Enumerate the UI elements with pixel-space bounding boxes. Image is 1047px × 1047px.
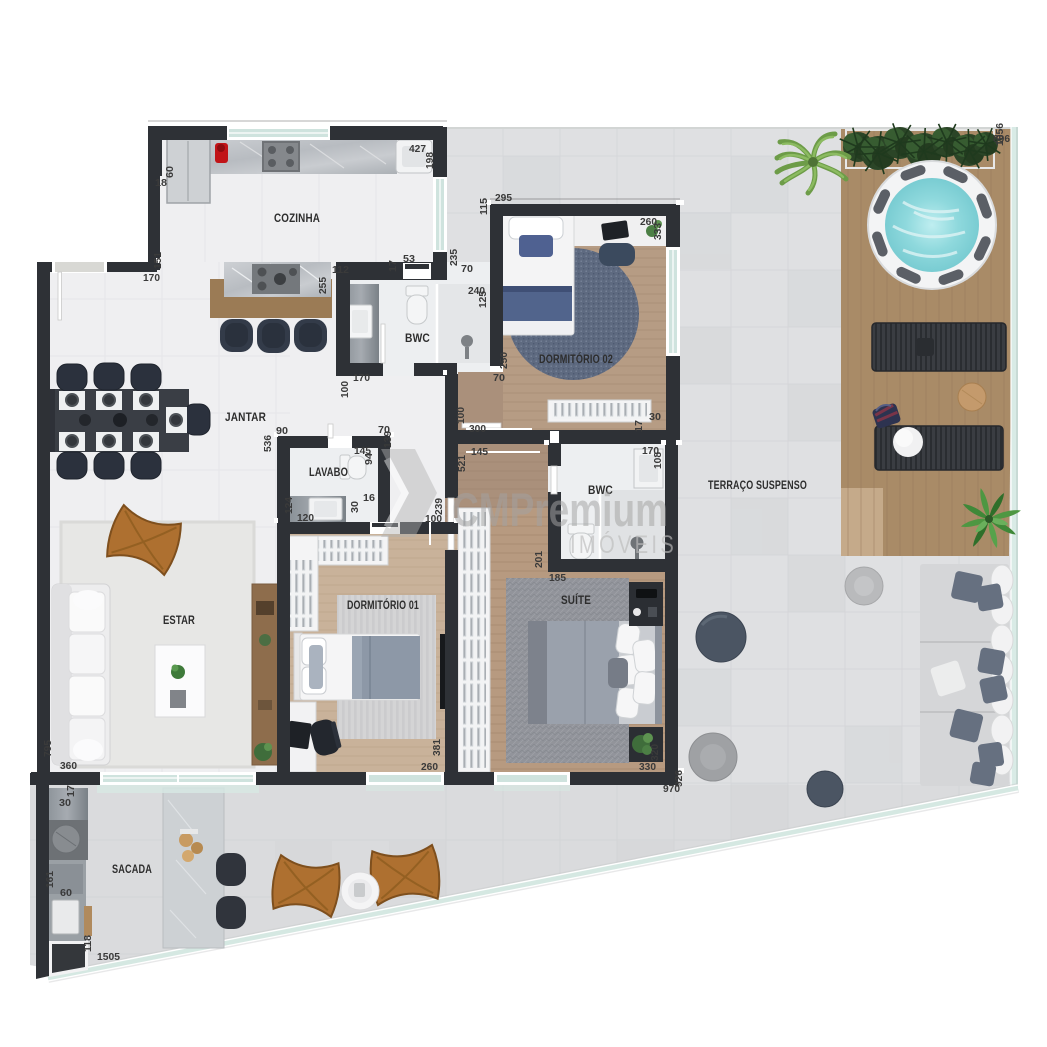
- svg-text:360: 360: [60, 760, 77, 772]
- svg-text:118: 118: [82, 935, 94, 952]
- svg-text:125: 125: [477, 291, 489, 308]
- svg-text:100: 100: [455, 407, 467, 424]
- svg-text:16: 16: [363, 492, 375, 504]
- svg-text:300: 300: [469, 423, 486, 435]
- svg-text:1505: 1505: [97, 951, 120, 963]
- svg-text:260: 260: [421, 761, 438, 773]
- svg-text:536: 536: [262, 435, 274, 452]
- svg-text:IMÓVEIS: IMÓVEIS: [570, 530, 677, 559]
- svg-text:30: 30: [649, 411, 661, 423]
- svg-text:SACADA: SACADA: [112, 864, 152, 876]
- svg-text:124: 124: [283, 497, 295, 514]
- svg-text:235: 235: [448, 249, 460, 266]
- svg-text:SUÍTE: SUÍTE: [561, 594, 591, 607]
- svg-text:17: 17: [387, 260, 399, 272]
- svg-text:120: 120: [297, 512, 314, 524]
- svg-text:94: 94: [363, 453, 375, 465]
- svg-text:250: 250: [498, 352, 510, 369]
- svg-text:108: 108: [652, 452, 664, 469]
- svg-text:112: 112: [332, 264, 349, 276]
- svg-text:TERRAÇO SUSPENSO: TERRAÇO SUSPENSO: [708, 480, 807, 492]
- svg-text:115: 115: [478, 198, 490, 215]
- svg-text:198: 198: [424, 152, 436, 169]
- svg-text:1056: 1056: [994, 123, 1006, 146]
- svg-text:239: 239: [433, 498, 445, 515]
- svg-text:100: 100: [339, 381, 351, 398]
- svg-text:60: 60: [164, 166, 176, 178]
- svg-text:17: 17: [633, 420, 645, 432]
- svg-text:381: 381: [431, 739, 443, 756]
- svg-text:JANTAR: JANTAR: [225, 412, 266, 424]
- svg-text:161: 161: [44, 871, 56, 888]
- svg-text:151: 151: [152, 252, 164, 269]
- svg-text:60: 60: [60, 887, 72, 899]
- svg-text:795: 795: [42, 740, 54, 757]
- svg-text:DORMITÓRIO 01: DORMITÓRIO 01: [347, 599, 419, 612]
- svg-text:30: 30: [59, 797, 71, 809]
- svg-text:295: 295: [495, 192, 512, 204]
- svg-text:90: 90: [276, 425, 288, 437]
- svg-text:53: 53: [403, 253, 415, 265]
- svg-text:17: 17: [65, 785, 77, 797]
- svg-text:330: 330: [639, 761, 656, 773]
- svg-text:170: 170: [353, 372, 370, 384]
- svg-text:ESTAR: ESTAR: [163, 615, 195, 627]
- svg-text:70: 70: [461, 263, 473, 275]
- svg-text:521: 521: [456, 455, 468, 472]
- svg-text:DORMITÓRIO 02: DORMITÓRIO 02: [539, 353, 613, 366]
- svg-text:30: 30: [349, 501, 361, 513]
- svg-text:LAVABO: LAVABO: [309, 467, 348, 479]
- svg-text:320: 320: [649, 744, 661, 761]
- svg-text:255: 255: [317, 277, 329, 294]
- svg-text:185: 185: [549, 572, 566, 584]
- svg-text:170: 170: [143, 272, 160, 284]
- svg-text:145: 145: [471, 446, 488, 458]
- svg-text:926: 926: [673, 770, 685, 787]
- svg-text:CMPremium: CMPremium: [452, 483, 668, 536]
- svg-text:139: 139: [382, 431, 394, 448]
- svg-text:70: 70: [493, 372, 505, 384]
- svg-text:201: 201: [533, 551, 545, 568]
- svg-text:COZINHA: COZINHA: [274, 213, 320, 225]
- svg-text:333: 333: [652, 223, 664, 240]
- svg-text:BWC: BWC: [405, 333, 430, 345]
